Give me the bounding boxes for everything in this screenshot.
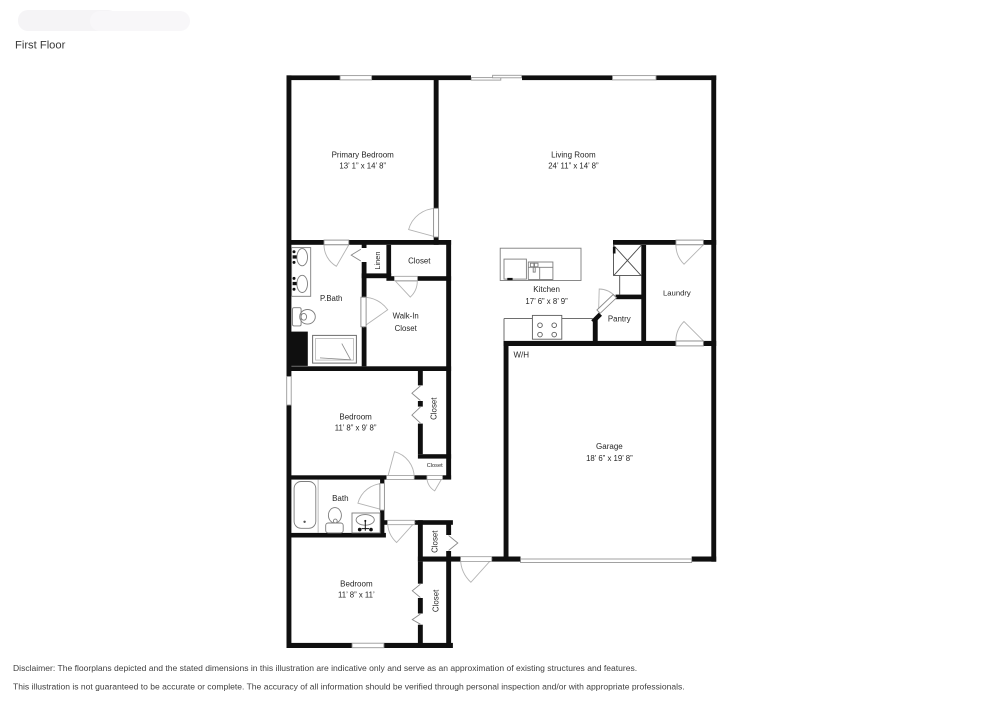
svg-text:Closet: Closet (430, 397, 439, 420)
svg-text:Linen: Linen (373, 252, 382, 270)
svg-text:Bedroom: Bedroom (340, 579, 373, 588)
svg-text:Closet: Closet (408, 257, 431, 266)
svg-text:P.Bath: P.Bath (320, 294, 342, 303)
svg-text:Laundry: Laundry (663, 288, 691, 297)
svg-text:13’ 1” x 14’ 8”: 13’ 1” x 14’ 8” (339, 162, 386, 171)
svg-text:Closet: Closet (431, 589, 440, 612)
svg-text:11’ 8” x 11’: 11’ 8” x 11’ (338, 591, 375, 600)
svg-text:Primary Bedroom: Primary Bedroom (332, 150, 395, 159)
svg-text:Kitchen: Kitchen (533, 285, 560, 294)
svg-text:Walk-In: Walk-In (393, 311, 419, 320)
svg-text:This illustration is not guara: This illustration is not guaranteed to b… (13, 682, 685, 692)
svg-text:Bedroom: Bedroom (339, 413, 372, 422)
svg-text:11’ 8” x 9’ 8”: 11’ 8” x 9’ 8” (335, 424, 377, 433)
svg-text:Disclaimer: The floorplans dep: Disclaimer: The floorplans depicted and … (13, 663, 637, 673)
svg-text:Living Room: Living Room (551, 150, 596, 159)
svg-text:Garage: Garage (596, 442, 623, 451)
svg-text:Closet: Closet (395, 324, 418, 333)
svg-text:Closet: Closet (427, 463, 443, 469)
svg-text:W/H: W/H (514, 350, 530, 359)
svg-text:First Floor: First Floor (15, 40, 66, 52)
svg-text:18’ 6” x 19’ 8”: 18’ 6” x 19’ 8” (586, 454, 633, 463)
svg-text:Closet: Closet (430, 530, 439, 553)
svg-text:17’ 6” x 8’ 9”: 17’ 6” x 8’ 9” (525, 297, 568, 306)
svg-text:Pantry: Pantry (608, 314, 631, 323)
svg-text:Bath: Bath (332, 494, 348, 503)
svg-text:24’ 11” x 14’ 8”: 24’ 11” x 14’ 8” (548, 162, 599, 171)
